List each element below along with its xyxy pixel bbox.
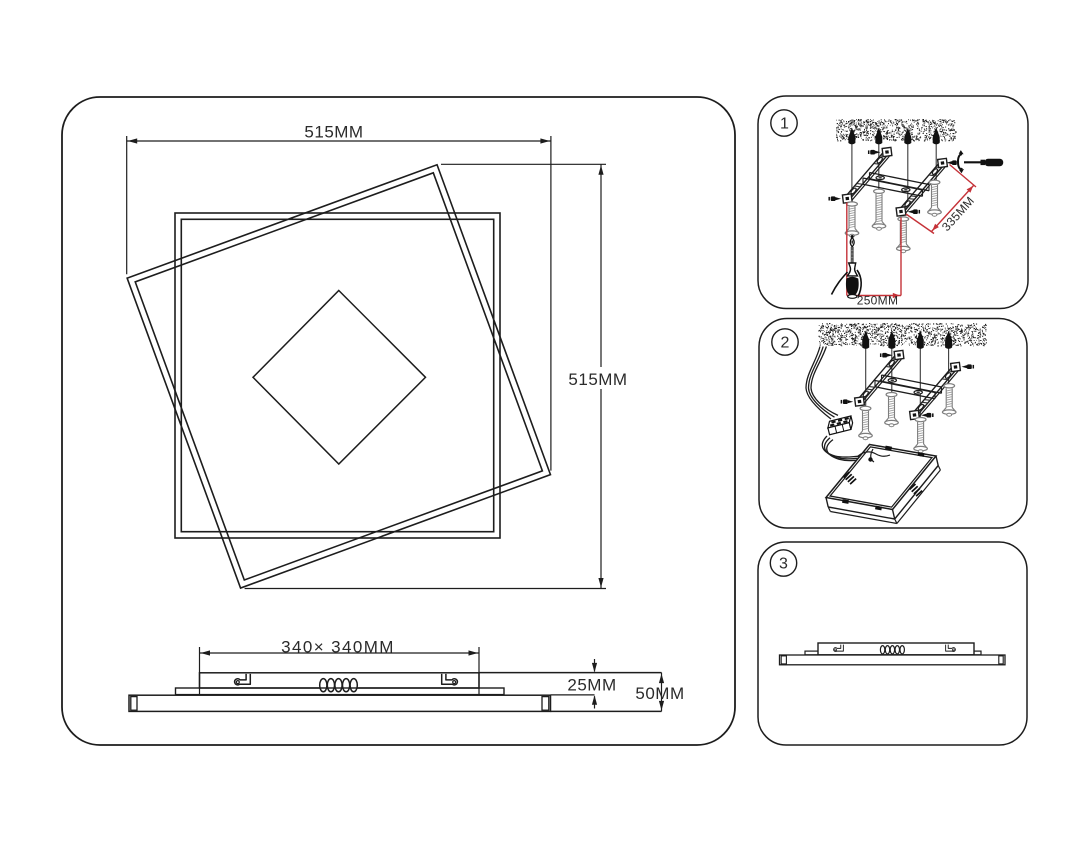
svg-text:340× 340MM: 340× 340MM [281,637,395,656]
svg-text:3: 3 [779,556,788,573]
svg-text:250MM: 250MM [857,294,899,308]
svg-text:25MM: 25MM [567,676,616,695]
svg-text:1: 1 [780,115,789,132]
svg-text:515MM: 515MM [568,370,627,389]
svg-text:515MM: 515MM [304,123,363,142]
svg-text:50MM: 50MM [635,684,684,703]
svg-text:2: 2 [781,335,790,352]
